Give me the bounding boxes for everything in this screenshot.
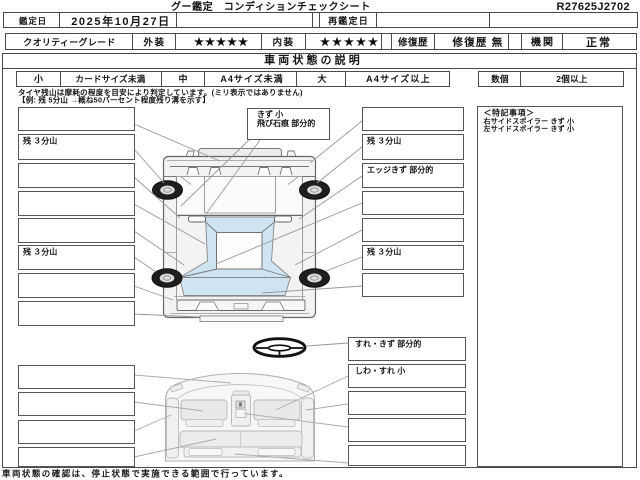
svg-text:残 ３分山: 残 ３分山	[23, 247, 57, 257]
svg-text:残 ３分山: 残 ３分山	[367, 247, 401, 257]
svg-text:【例: 残 5分山 →概ね50パーセント程度残り溝を示す】: 【例: 残 5分山 →概ね50パーセント程度残り溝を示す】	[18, 95, 210, 105]
svg-text:左サイドスポイラー きず 小: 左サイドスポイラー きず 小	[483, 124, 575, 133]
svg-text:A4サイズ未満: A4サイズ未満	[220, 73, 283, 84]
svg-text:車両状態の説明: 車両状態の説明	[264, 53, 363, 67]
svg-text:右サイドスポイラー きず 小: 右サイドスポイラー きず 小	[483, 117, 575, 126]
svg-text:正常: 正常	[586, 35, 612, 49]
svg-text:エッジきず 部分的: エッジきず 部分的	[367, 165, 433, 175]
svg-text:R27625J2702: R27625J2702	[556, 1, 630, 13]
svg-text:2025年10月27日: 2025年10月27日	[71, 14, 171, 28]
svg-text:A4サイズ以上: A4サイズ以上	[366, 73, 431, 84]
svg-text:再鑑定日: 再鑑定日	[328, 15, 369, 26]
svg-text:カードサイズ未満: カードサイズ未満	[75, 74, 145, 84]
svg-text:修復歴: 修復歴	[397, 37, 428, 49]
svg-text:大: 大	[317, 73, 326, 84]
svg-text:外装: 外装	[142, 37, 165, 49]
svg-text:飛び石痕 部分的: 飛び石痕 部分的	[256, 118, 315, 128]
svg-text:2個以上: 2個以上	[556, 74, 588, 84]
svg-text:車両状態の確認は、停止状態で実施できる範囲で行っています。: 車両状態の確認は、停止状態で実施できる範囲で行っています。	[2, 469, 289, 479]
svg-text:修復歴 無: 修復歴 無	[452, 36, 504, 49]
svg-text:＜特記事項＞: ＜特記事項＞	[484, 108, 535, 118]
svg-text:小: 小	[33, 73, 43, 84]
svg-text:グー鑑定 コンディションチェックシート: グー鑑定 コンディションチェックシート	[171, 0, 371, 13]
svg-text:数個: 数個	[491, 74, 509, 84]
svg-text:きず 小: きず 小	[257, 109, 283, 119]
svg-text:残 ３分山: 残 ３分山	[23, 136, 57, 146]
svg-text:しわ・すれ 小: しわ・すれ 小	[355, 366, 405, 376]
svg-text:中: 中	[178, 73, 187, 84]
svg-text:クオリティーグレード: クオリティーグレード	[23, 37, 115, 48]
svg-text:鑑定日: 鑑定日	[19, 16, 47, 26]
svg-text:すれ・きず 部分的: すれ・きず 部分的	[355, 339, 421, 349]
svg-text:機関: 機関	[531, 36, 555, 49]
svg-text:内装: 内装	[272, 37, 294, 49]
svg-text:残 ３分山: 残 ３分山	[367, 136, 401, 146]
